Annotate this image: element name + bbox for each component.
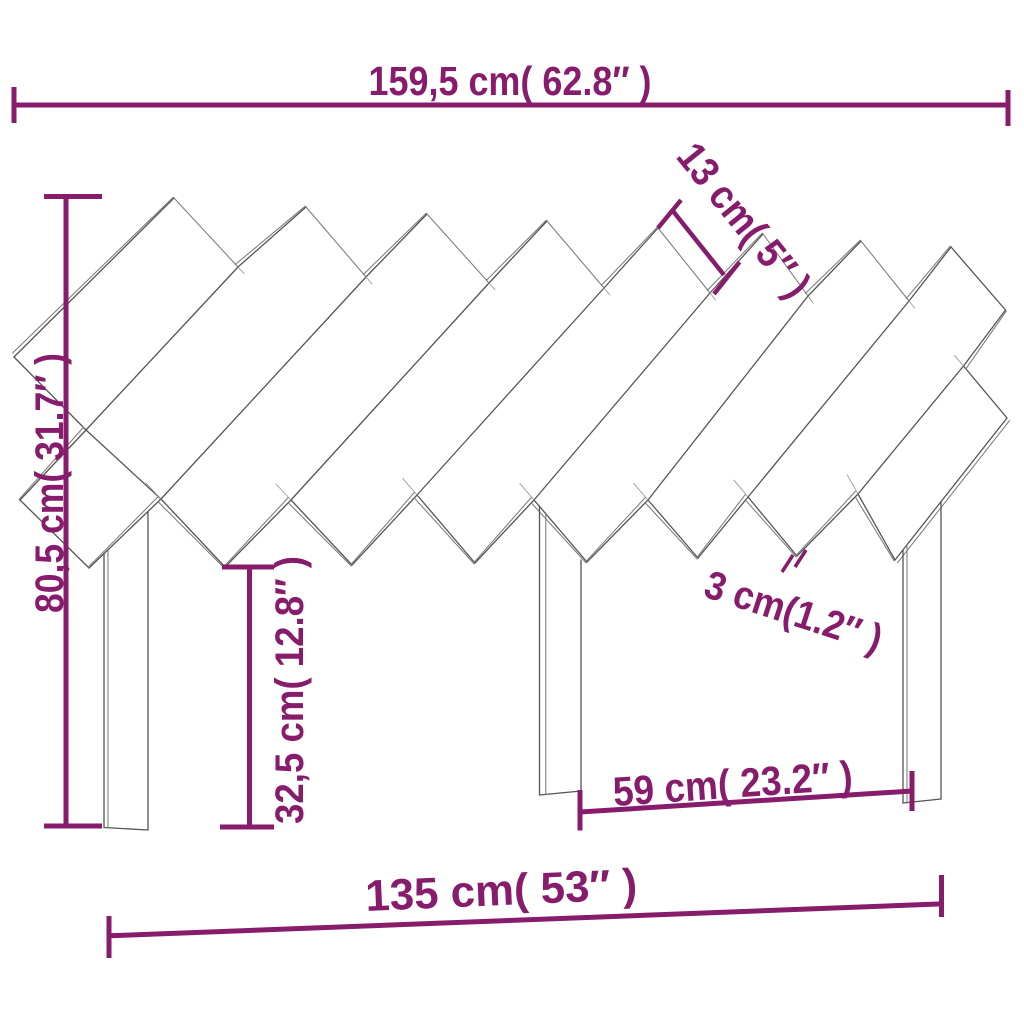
svg-text:59 cm( 23.2″ ): 59 cm( 23.2″ ) [611,752,854,815]
svg-text:159,5 cm( 62.8″ ): 159,5 cm( 62.8″ ) [369,58,652,104]
svg-text:3 cm(1.2″ ): 3 cm(1.2″ ) [699,563,888,662]
svg-text:32,5 cm( 12.8″ ): 32,5 cm( 12.8″ ) [268,556,312,824]
svg-text:135 cm( 53″ ): 135 cm( 53″ ) [364,860,638,921]
svg-text:80,5 cm( 31.7″ ): 80,5 cm( 31.7″ ) [28,353,72,613]
svg-text:13 cm( 5″ ): 13 cm( 5″ ) [668,134,820,307]
